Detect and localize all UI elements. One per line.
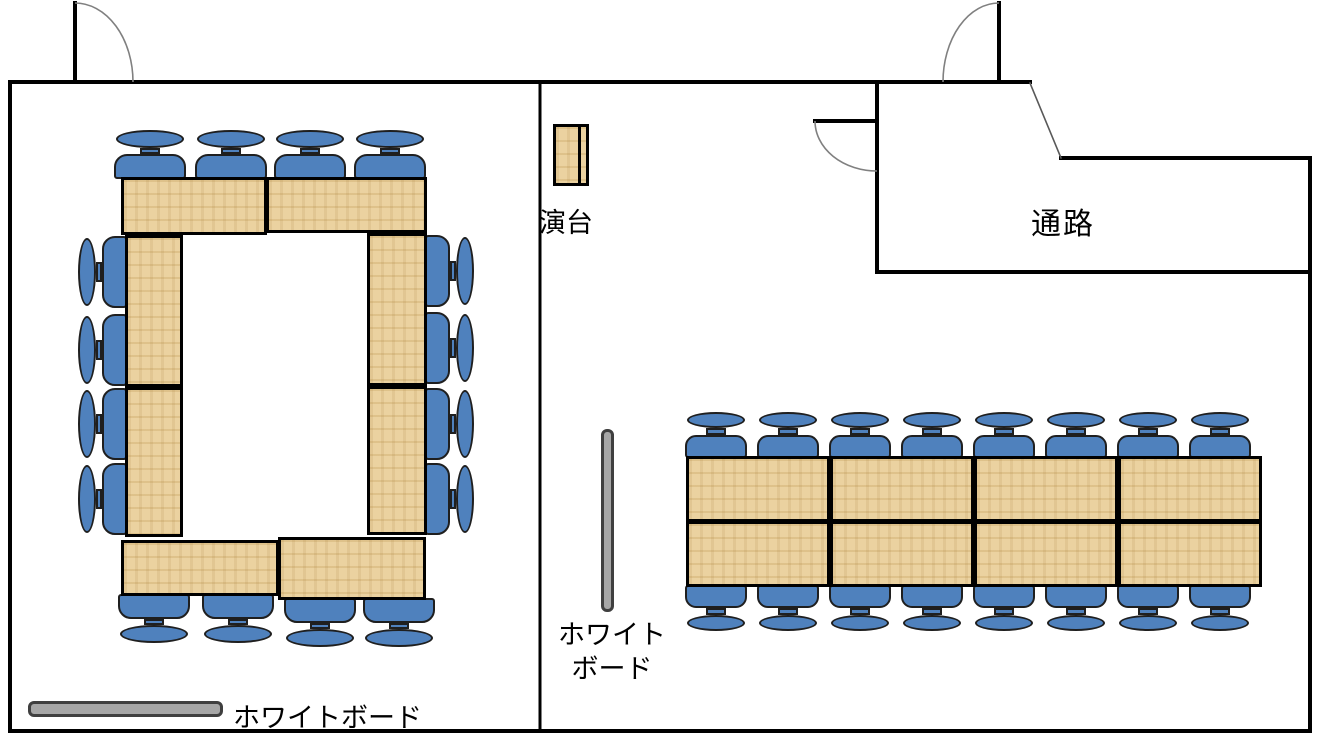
chair-back — [831, 412, 889, 428]
table — [367, 386, 427, 535]
chair-seat — [102, 463, 127, 535]
table — [830, 456, 974, 522]
chair-back — [759, 412, 817, 428]
chair-seat — [354, 154, 426, 179]
chair-neck — [706, 608, 726, 615]
chair — [1045, 585, 1107, 631]
chair-back — [975, 615, 1033, 631]
table — [974, 456, 1118, 522]
chair-seat — [901, 585, 963, 608]
table — [686, 521, 830, 587]
chair-back — [687, 412, 745, 428]
chair-back — [456, 237, 474, 305]
chair-back — [1191, 412, 1249, 428]
table — [125, 235, 183, 387]
chair — [829, 412, 891, 458]
chair-back — [456, 314, 474, 382]
chair-back — [78, 238, 96, 306]
chair — [757, 585, 819, 631]
table — [830, 521, 974, 587]
chair-back — [1119, 615, 1177, 631]
chair — [829, 585, 891, 631]
chair — [1117, 412, 1179, 458]
chair-seat — [973, 585, 1035, 608]
chair-back — [456, 390, 474, 458]
chair — [363, 598, 435, 647]
chair-seat — [1045, 435, 1107, 458]
whiteboard-label-room-b: ホワイト ボード — [546, 618, 678, 686]
table — [1118, 456, 1262, 522]
chair-seat — [425, 388, 450, 460]
chair-seat — [1189, 585, 1251, 608]
table — [974, 521, 1118, 587]
chair — [425, 388, 474, 460]
chair-back — [78, 465, 96, 533]
chair-back — [759, 615, 817, 631]
chair — [284, 598, 356, 647]
podium-divider — [578, 126, 581, 184]
chair-seat — [685, 585, 747, 608]
whiteboard-label-room-a: ホワイトボード — [233, 696, 422, 735]
chair-neck — [850, 608, 870, 615]
chair — [114, 130, 186, 179]
chair — [202, 594, 274, 643]
chair-neck — [994, 608, 1014, 615]
chair — [274, 130, 346, 179]
chair — [973, 585, 1035, 631]
chair-seat — [757, 435, 819, 458]
chair-neck — [922, 428, 942, 435]
chair-neck — [778, 608, 798, 615]
chair — [1117, 585, 1179, 631]
chair-back — [78, 390, 96, 458]
chair — [78, 388, 127, 460]
chair-back — [903, 615, 961, 631]
chair-seat — [202, 594, 274, 619]
chair — [685, 412, 747, 458]
chair — [757, 412, 819, 458]
chair-back — [456, 465, 474, 533]
chair — [973, 412, 1035, 458]
whiteboard-label-line2: ボード — [546, 652, 678, 686]
chair — [1189, 585, 1251, 631]
chair-back — [975, 412, 1033, 428]
chair-back — [1047, 615, 1105, 631]
chair — [425, 312, 474, 384]
table — [278, 537, 426, 600]
table — [1118, 521, 1262, 587]
chair-back — [365, 629, 433, 647]
chair-neck — [850, 428, 870, 435]
chair-neck — [1066, 608, 1086, 615]
chair-back — [116, 130, 184, 148]
chair-seat — [829, 585, 891, 608]
chair — [354, 130, 426, 179]
chair-seat — [102, 314, 127, 386]
table — [125, 387, 183, 537]
chair-seat — [1189, 435, 1251, 458]
chair-neck — [1210, 608, 1230, 615]
chair-back — [1047, 412, 1105, 428]
table — [121, 177, 267, 235]
podium-label: 演台 — [539, 201, 593, 240]
chair — [901, 585, 963, 631]
table — [686, 456, 830, 522]
chair-neck — [1210, 428, 1230, 435]
chair-seat — [425, 235, 450, 307]
chair-seat — [829, 435, 891, 458]
chair-back — [286, 629, 354, 647]
chair-seat — [425, 312, 450, 384]
chair-neck — [1066, 428, 1086, 435]
chair — [425, 235, 474, 307]
chair — [78, 314, 127, 386]
chair-seat — [363, 598, 435, 623]
chair-seat — [118, 594, 190, 619]
chair-seat — [685, 435, 747, 458]
chair-seat — [284, 598, 356, 623]
table — [266, 177, 427, 233]
whiteboard — [28, 701, 223, 717]
chair — [118, 594, 190, 643]
chair-seat — [1117, 585, 1179, 608]
chair — [685, 585, 747, 631]
chair — [1045, 412, 1107, 458]
chair-back — [197, 130, 265, 148]
chair-seat — [102, 388, 127, 460]
floorplan-canvas: 演台 通路 ホワイトボード ホワイト ボード — [0, 0, 1321, 745]
chair-back — [903, 412, 961, 428]
chair-seat — [195, 154, 267, 179]
chair — [78, 463, 127, 535]
chair — [78, 236, 127, 308]
chair-seat — [1117, 435, 1179, 458]
chair-back — [1191, 615, 1249, 631]
chair-neck — [994, 428, 1014, 435]
whiteboard — [601, 429, 614, 612]
chair-back — [1119, 412, 1177, 428]
chair-back — [204, 625, 272, 643]
table — [367, 233, 427, 386]
podium — [553, 124, 589, 186]
chair — [195, 130, 267, 179]
chair-back — [276, 130, 344, 148]
chair-back — [356, 130, 424, 148]
chair-seat — [114, 154, 186, 179]
chair-back — [831, 615, 889, 631]
chair-neck — [778, 428, 798, 435]
chair-back — [120, 625, 188, 643]
chair — [1189, 412, 1251, 458]
chair-seat — [757, 585, 819, 608]
chair-back — [78, 316, 96, 384]
chair — [901, 412, 963, 458]
chair-back — [687, 615, 745, 631]
chair-seat — [1045, 585, 1107, 608]
chair-neck — [1138, 428, 1158, 435]
whiteboard-label-line1: ホワイト — [546, 618, 678, 652]
chair-seat — [901, 435, 963, 458]
chair-seat — [102, 236, 127, 308]
chair — [425, 463, 474, 535]
corridor-label: 通路 — [1031, 199, 1095, 243]
chair-seat — [425, 463, 450, 535]
chair-seat — [274, 154, 346, 179]
table — [121, 540, 279, 596]
chair-seat — [973, 435, 1035, 458]
chair-neck — [922, 608, 942, 615]
chair-neck — [1138, 608, 1158, 615]
chair-neck — [706, 428, 726, 435]
